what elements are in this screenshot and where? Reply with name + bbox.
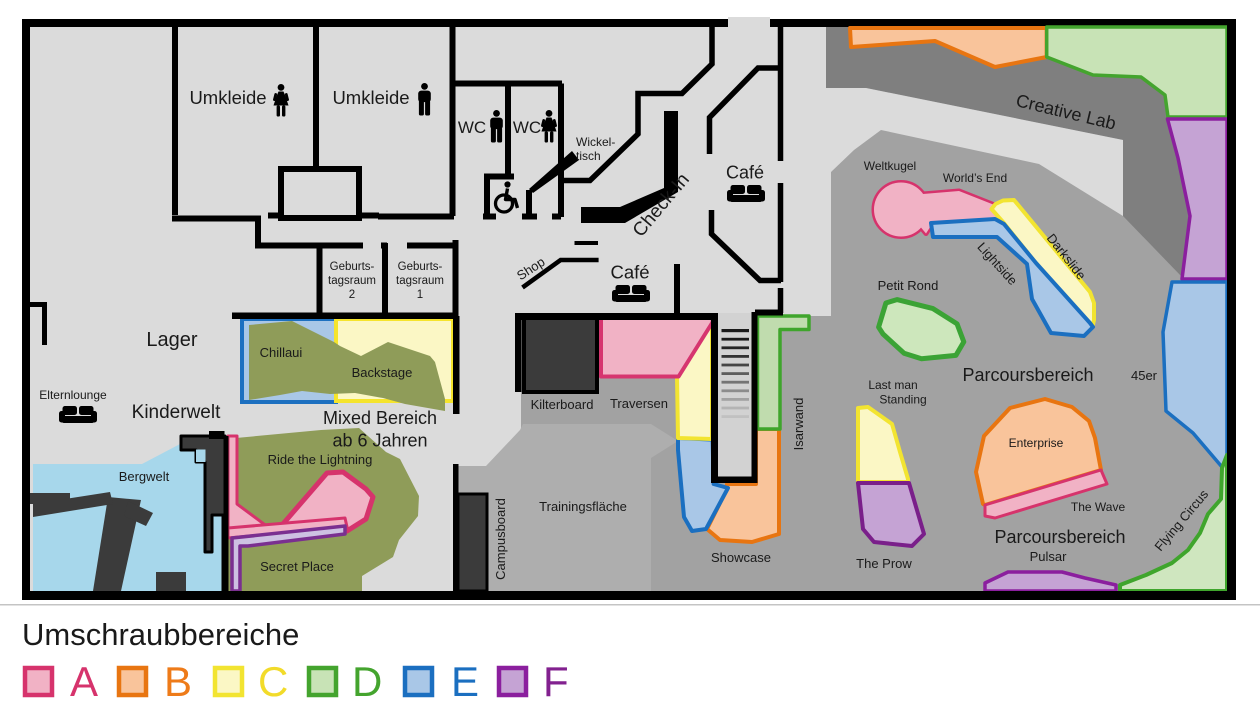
svg-text:Traversen: Traversen [610,396,668,411]
svg-text:Bergwelt: Bergwelt [119,469,170,484]
svg-text:tagsraum: tagsraum [396,275,444,287]
svg-text:Trainingsfläche: Trainingsfläche [539,499,627,514]
svg-text:Café: Café [726,163,764,183]
svg-text:ab 6 Jahren: ab 6 Jahren [332,431,427,451]
svg-text:Showcase: Showcase [711,550,771,565]
svg-text:Pulsar: Pulsar [1030,549,1068,564]
svg-text:Umkleide: Umkleide [189,87,266,108]
svg-text:Petit Rond: Petit Rond [878,278,939,293]
svg-text:Lager: Lager [146,329,197,351]
svg-text:Weltkugel: Weltkugel [864,159,916,173]
svg-text:World’s End: World’s End [943,171,1007,185]
svg-text:Geburts-: Geburts- [398,261,443,273]
svg-text:Standing: Standing [879,393,926,407]
svg-text:Chillaui: Chillaui [260,345,303,360]
svg-text:1: 1 [417,289,423,301]
svg-text:Last man: Last man [868,378,917,392]
svg-text:Backstage: Backstage [352,365,413,380]
svg-text:WC: WC [513,118,541,137]
svg-text:tisch: tisch [576,149,601,163]
svg-text:Wickel-: Wickel- [576,135,615,149]
svg-text:WC: WC [458,118,486,137]
svg-text:Mixed Bereich: Mixed Bereich [323,408,437,428]
svg-text:Kinderwelt: Kinderwelt [132,402,221,423]
svg-text:Enterprise: Enterprise [1009,436,1064,450]
svg-text:B: B [164,658,192,705]
svg-text:Campusboard: Campusboard [493,498,508,580]
svg-text:Secret Place: Secret Place [260,559,334,574]
svg-text:Isarwand: Isarwand [791,398,806,451]
svg-text:The Prow: The Prow [856,556,912,571]
svg-text:45er: 45er [1131,368,1158,383]
svg-text:Umschraubbereiche: Umschraubbereiche [22,617,299,652]
svg-text:Kilterboard: Kilterboard [531,397,594,412]
svg-text:Parcoursbereich: Parcoursbereich [962,365,1093,385]
svg-text:Café: Café [610,262,649,283]
svg-text:2: 2 [349,289,355,301]
svg-text:The Wave: The Wave [1071,500,1126,514]
svg-text:C: C [258,658,288,705]
svg-text:tagsraum: tagsraum [328,275,376,287]
svg-text:Umkleide: Umkleide [332,87,409,108]
svg-text:A: A [70,658,98,705]
svg-text:Parcoursbereich: Parcoursbereich [994,527,1125,547]
svg-text:D: D [352,658,382,705]
svg-text:Ride the Lightning: Ride the Lightning [268,452,373,467]
svg-text:E: E [451,658,479,705]
svg-text:F: F [543,658,569,705]
svg-text:Geburts-: Geburts- [330,261,375,273]
svg-text:Elternlounge: Elternlounge [39,388,107,402]
